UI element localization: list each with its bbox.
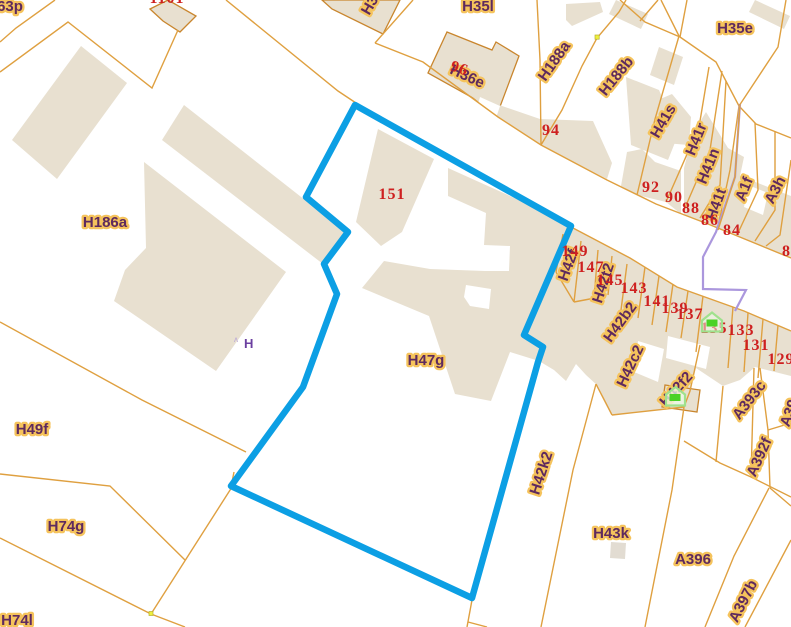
svg-text:145: 145 [597, 272, 624, 289]
svg-text:88: 88 [682, 200, 700, 217]
svg-text:84: 84 [723, 222, 741, 239]
svg-text:90: 90 [665, 189, 683, 206]
svg-text:151: 151 [379, 186, 406, 203]
svg-text:H: H [244, 336, 253, 351]
svg-text:ʌ: ʌ [234, 335, 238, 344]
svg-text:131: 131 [743, 337, 770, 354]
svg-text:H35e: H35e [717, 20, 753, 37]
svg-text:94: 94 [542, 122, 560, 139]
svg-text:92: 92 [642, 179, 660, 196]
svg-text:63p: 63p [0, 0, 23, 15]
svg-text:82: 82 [782, 243, 791, 260]
svg-text:H74l: H74l [1, 612, 33, 627]
svg-text:H47g: H47g [408, 352, 445, 369]
svg-text:149: 149 [562, 243, 589, 260]
svg-text:1101: 1101 [149, 0, 184, 7]
svg-text:H74g: H74g [48, 518, 85, 535]
svg-text:H186a: H186a [83, 214, 128, 231]
svg-text:137: 137 [677, 306, 704, 323]
svg-text:H35l: H35l [462, 0, 494, 15]
svg-text:86: 86 [701, 212, 719, 229]
svg-text:H49f: H49f [16, 421, 50, 438]
svg-text:H43k: H43k [593, 525, 630, 542]
svg-text:129: 129 [768, 351, 791, 368]
svg-text:A396: A396 [675, 551, 711, 568]
